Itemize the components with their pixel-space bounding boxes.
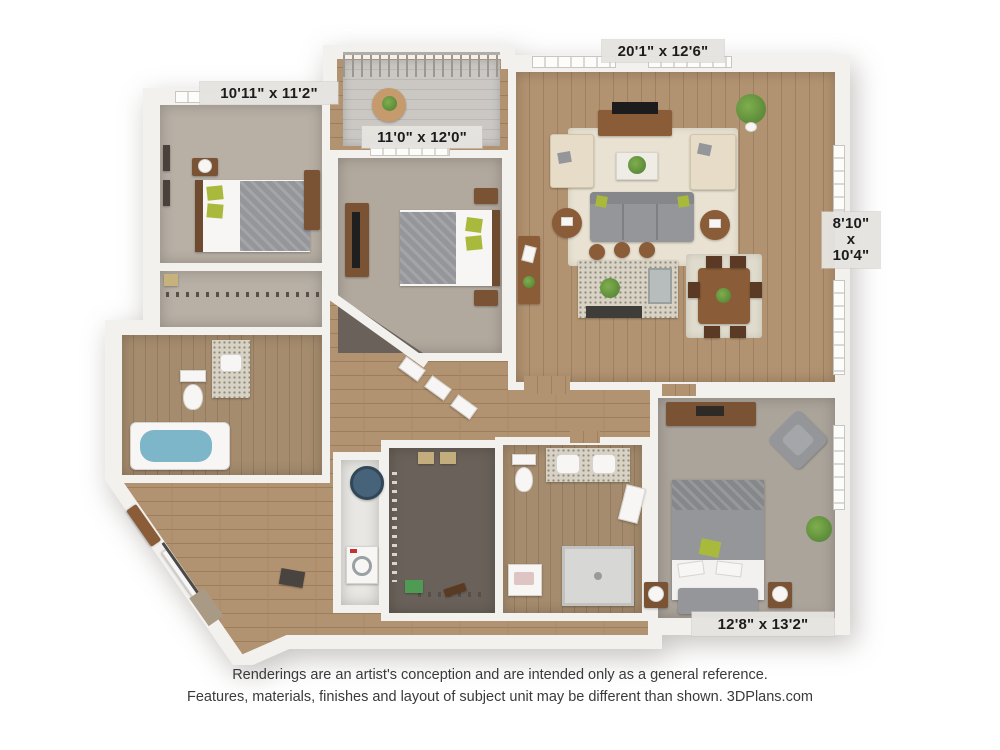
toilet-bowl (515, 467, 533, 492)
bar-stool (639, 242, 655, 258)
nightstand (474, 290, 498, 306)
sofa-cushion-seam (622, 204, 624, 240)
pillow (465, 217, 483, 233)
headboard (195, 180, 203, 252)
closet-rod (166, 292, 322, 297)
disclaimer-line-1: Renderings are an artist's conception an… (0, 664, 1000, 686)
bar-stool (614, 242, 630, 258)
balcony-plant-icon (382, 96, 397, 111)
armchair-chaise (690, 134, 736, 190)
pillow (697, 143, 712, 156)
toilet-tank (512, 454, 536, 465)
dining-chair (706, 256, 722, 268)
dimension-label-bedroom-bottom-right: 12'8" x 13'2" (692, 612, 834, 636)
pillow (465, 235, 482, 251)
headboard (672, 480, 764, 510)
disclaimer: Renderings are an artist's conception an… (0, 664, 1000, 708)
dimension-text: 12'8" x 13'2" (718, 616, 809, 633)
dining-chair (688, 282, 700, 298)
nightstand (474, 188, 498, 204)
island-cabinet (586, 306, 642, 318)
water-heater (350, 466, 384, 500)
washer-door (352, 556, 372, 576)
coffee-table-plant-icon (628, 156, 646, 174)
lamp-icon (648, 586, 664, 602)
toilet-bowl (183, 384, 203, 410)
duvet (240, 181, 310, 251)
dining-chair (750, 282, 762, 298)
balcony-railing (343, 55, 500, 77)
floor-plan-page: 10'11" x 11'2" 11'0" x 12'0" 20'1" x 12'… (0, 0, 1000, 750)
door-opening-bath (570, 431, 600, 443)
dimension-text: 10'4" (833, 248, 870, 264)
island-plant-icon (600, 278, 620, 298)
kitchen-sink (648, 268, 672, 304)
closet-top-left (152, 263, 330, 335)
storage-bin (405, 580, 423, 593)
dining-chair (704, 326, 720, 338)
foot-bench (678, 588, 758, 614)
window (833, 425, 845, 510)
wall-art (163, 145, 170, 171)
dining-chair (730, 326, 746, 338)
dimension-label-living-room: 20'1" x 12'6" (602, 40, 724, 62)
toilet-tank (180, 370, 206, 382)
dimension-label-patio: 8'10" x 10'4" (822, 212, 880, 268)
basket (418, 452, 434, 464)
potted-plant-icon (736, 94, 766, 124)
lamp-icon (772, 586, 788, 602)
book (709, 219, 721, 228)
dimension-text: 8'10" (833, 216, 870, 232)
dimension-text: x (847, 232, 856, 248)
pillow (715, 560, 743, 577)
plant-icon (523, 276, 535, 288)
dimension-text: 10'11" x 11'2" (220, 85, 318, 102)
tv-icon (612, 102, 658, 114)
wall-art (163, 180, 170, 206)
pillow (206, 185, 223, 201)
shower-drain (594, 572, 602, 580)
sink (556, 454, 580, 474)
plant-pot (745, 122, 757, 132)
dining-chair (730, 256, 746, 268)
loveseat (550, 134, 594, 188)
basket (164, 274, 178, 286)
dresser-decor (696, 406, 724, 416)
dresser (304, 170, 320, 230)
sink (592, 454, 616, 474)
headboard (492, 210, 500, 286)
pillow (677, 195, 689, 207)
disclaimer-line-2: Features, materials, finishes and layout… (0, 686, 1000, 708)
duvet (400, 212, 456, 284)
washer-button (350, 549, 357, 553)
book (561, 217, 573, 226)
window (833, 280, 845, 375)
sink (220, 354, 242, 372)
centerpiece-icon (716, 288, 731, 303)
pillow (557, 151, 572, 164)
bathtub-water (140, 430, 212, 462)
plant-icon (806, 516, 832, 542)
towels (514, 572, 534, 585)
closet-rod (392, 472, 397, 582)
basket (440, 452, 456, 464)
dimension-label-bedroom-top-left: 10'11" x 11'2" (200, 82, 338, 104)
tv-icon (352, 212, 360, 268)
lamp-icon (198, 159, 212, 173)
dimension-text: 11'0" x 12'0" (377, 129, 467, 146)
dimension-label-bedroom-middle: 11'0" x 12'0" (362, 126, 482, 148)
sofa-cushion-seam (656, 204, 658, 240)
pillow (595, 195, 608, 208)
floor-plan: 10'11" x 11'2" 11'0" x 12'0" 20'1" x 12'… (100, 40, 950, 665)
door-opening-bedroom (662, 384, 696, 396)
bar-stool (589, 244, 605, 260)
dimension-text: 20'1" x 12'6" (618, 43, 709, 60)
door-opening-living (524, 376, 570, 394)
pillow (206, 203, 223, 218)
